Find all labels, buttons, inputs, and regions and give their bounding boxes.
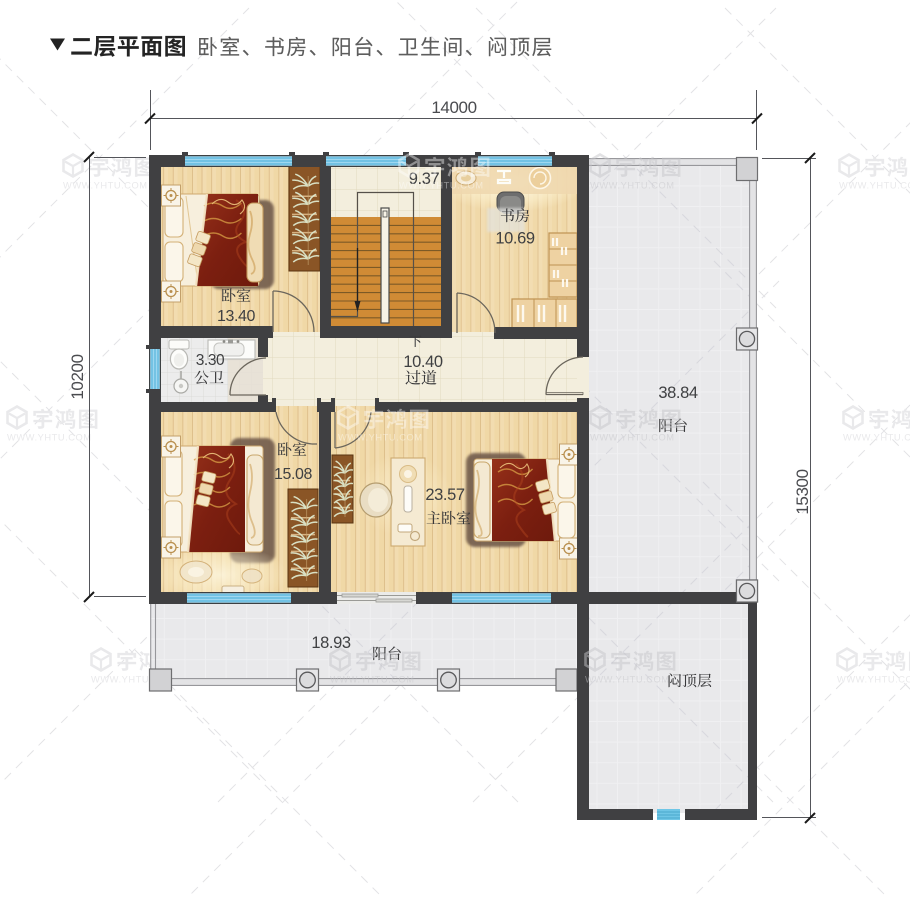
svg-text:10.69: 10.69 (495, 230, 535, 248)
svg-text:WWW.YHTU.COM: WWW.YHTU.COM (839, 181, 910, 191)
svg-text:WWW.YHTU.COM: WWW.YHTU.COM (843, 433, 910, 443)
svg-text:WWW.YHTU.COM: WWW.YHTU.COM (590, 433, 675, 443)
svg-text:38.84: 38.84 (658, 384, 698, 402)
svg-text:23.57: 23.57 (425, 486, 465, 504)
svg-text:WWW.YHTU.COM: WWW.YHTU.COM (7, 433, 92, 443)
svg-text:15300: 15300 (793, 469, 812, 514)
svg-text:18.93: 18.93 (311, 634, 351, 652)
svg-text:WWW.YHTU.COM: WWW.YHTU.COM (338, 433, 423, 443)
svg-text:14000: 14000 (431, 98, 476, 117)
svg-text:WWW.YHTU.COM: WWW.YHTU.COM (590, 181, 675, 191)
svg-text:WWW.YHTU.COM: WWW.YHTU.COM (585, 675, 670, 685)
svg-text:WWW.YHTU.COM: WWW.YHTU.COM (63, 181, 148, 191)
svg-text:WWW.YHTU.COM: WWW.YHTU.COM (837, 675, 910, 685)
svg-text:3.30: 3.30 (196, 352, 225, 369)
svg-text:15.08: 15.08 (274, 466, 313, 483)
svg-text:10200: 10200 (68, 354, 87, 399)
svg-text:10.40: 10.40 (403, 353, 443, 371)
svg-text:WWW.YHTU.COM: WWW.YHTU.COM (399, 181, 484, 191)
svg-text:13.40: 13.40 (217, 308, 256, 325)
svg-text:WWW.YHTU.COM: WWW.YHTU.COM (330, 675, 415, 685)
